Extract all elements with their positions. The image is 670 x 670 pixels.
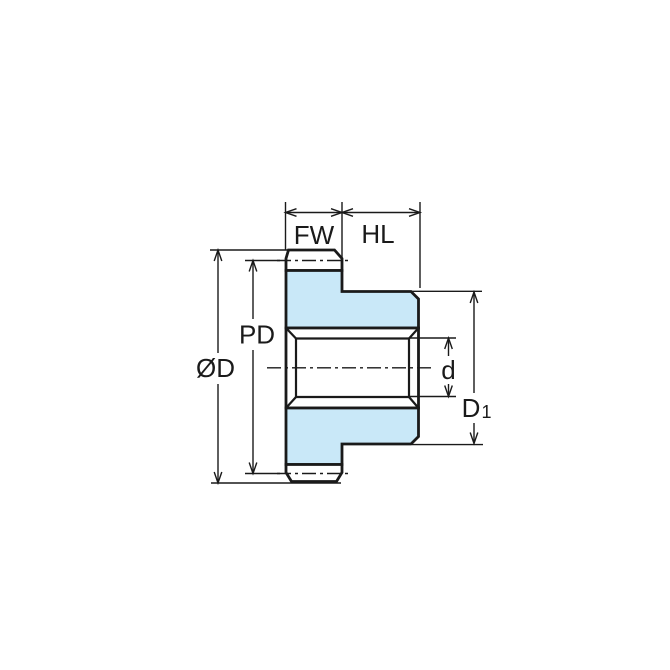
- gear-body-upper: [286, 271, 419, 329]
- dimension-d: d: [441, 338, 455, 397]
- fw-label: FW: [294, 220, 335, 250]
- dimension-d1: D 1: [462, 292, 492, 444]
- d1-label-base: D: [462, 393, 481, 423]
- d1-label-subscript: 1: [481, 402, 491, 422]
- gear-technical-drawing: FW HL ØD PD: [0, 0, 670, 670]
- dimension-hl: HL: [342, 209, 420, 249]
- gear-section: [286, 250, 419, 482]
- dimension-fw: FW: [286, 209, 343, 250]
- pd-label: PD: [239, 320, 275, 350]
- d-label: d: [441, 355, 455, 385]
- od-label: ØD: [196, 353, 235, 383]
- hl-label: HL: [361, 219, 394, 249]
- dimension-pd: PD: [239, 261, 275, 474]
- drawing-svg: FW HL ØD PD: [0, 0, 670, 670]
- dimension-od: ØD: [196, 250, 235, 483]
- gear-body-lower: [286, 408, 419, 465]
